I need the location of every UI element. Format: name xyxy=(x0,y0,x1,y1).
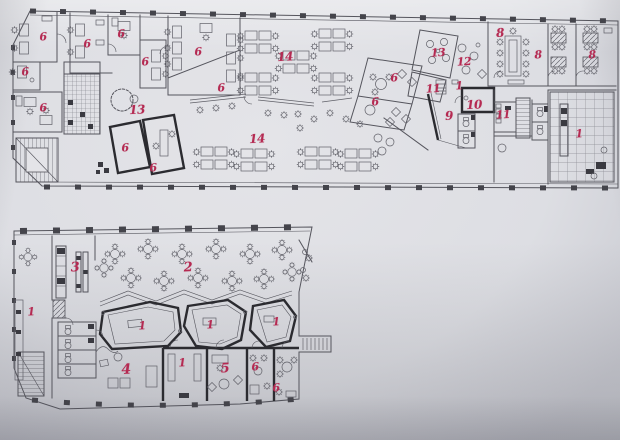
lower-floor-plan xyxy=(14,227,331,409)
floor-plan-drawing xyxy=(0,0,620,440)
upper-floor-plan xyxy=(9,11,618,188)
spiral-stair xyxy=(111,89,138,111)
entrance-lobby-tiled-floor xyxy=(550,92,614,182)
upper-plan-walls xyxy=(13,13,616,185)
meeting-pods xyxy=(100,290,297,349)
upper-plan-doors xyxy=(57,34,583,104)
scanned-floor-plan-page: 6666661466136614661312111109118881 32111… xyxy=(0,0,620,440)
